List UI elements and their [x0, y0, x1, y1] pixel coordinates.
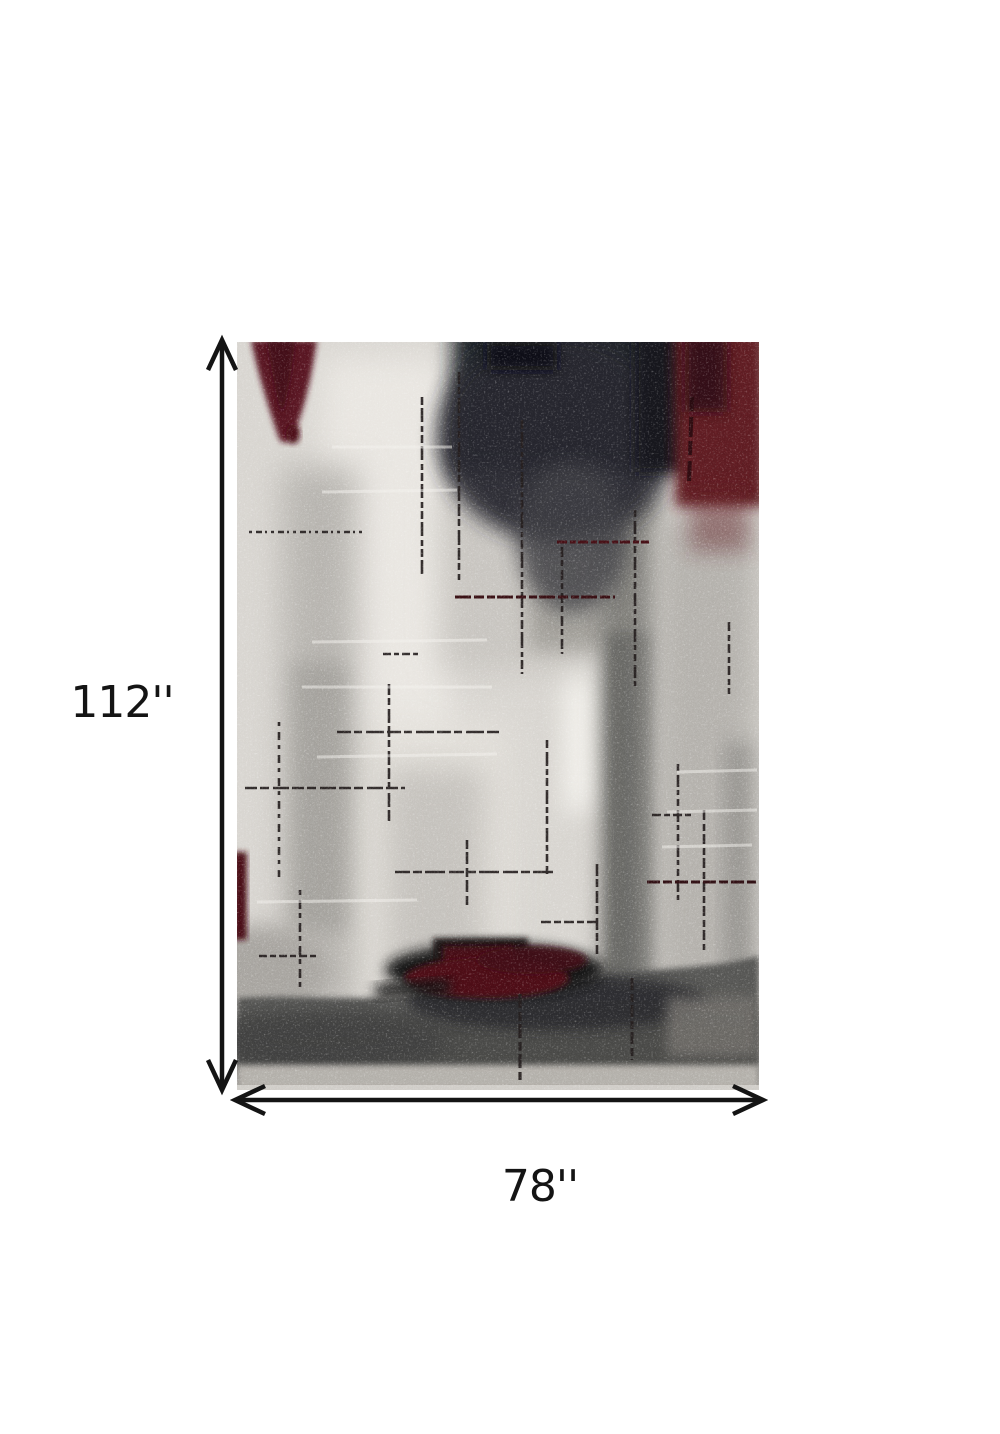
product-dimension-diagram: 112'' 78'' [0, 0, 1000, 1434]
height-dimension-arrow [200, 334, 244, 1096]
rug-salt-overlay [237, 342, 759, 1090]
width-dimension-arrow [230, 1078, 768, 1122]
rug-image [237, 342, 759, 1090]
height-dimension-label: 112'' [40, 681, 204, 725]
width-dimension-label: 78'' [458, 1165, 622, 1209]
